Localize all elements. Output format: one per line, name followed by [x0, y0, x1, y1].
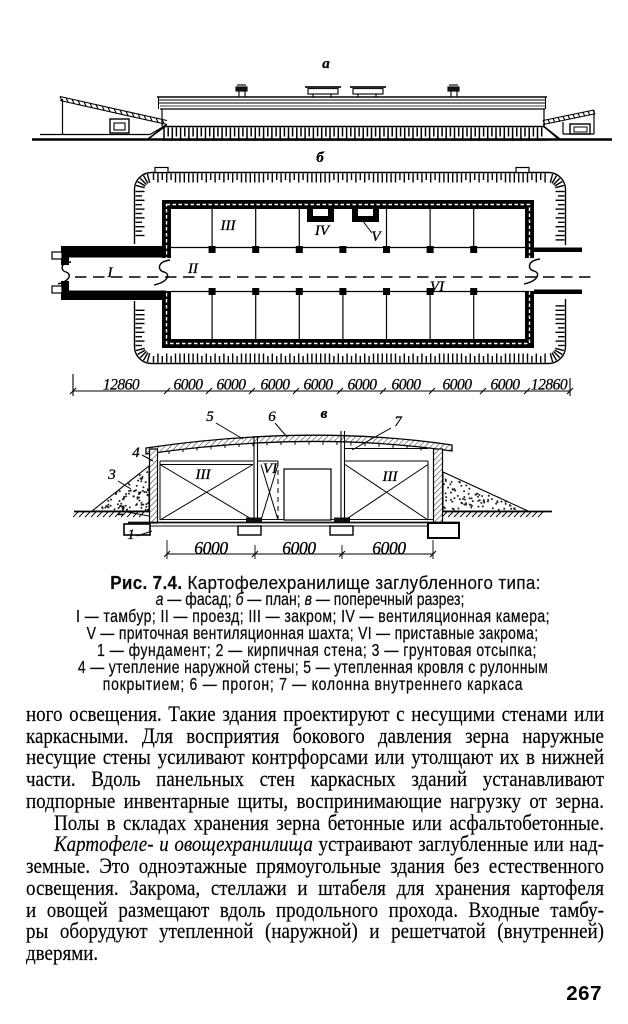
svg-text:3: 3: [107, 467, 116, 483]
svg-text:II: II: [187, 261, 199, 277]
svg-text:12860: 12860: [103, 377, 140, 394]
svg-text:III: III: [382, 469, 399, 485]
svg-text:6000: 6000: [392, 377, 422, 394]
svg-text:III: III: [220, 218, 237, 234]
svg-text:6000: 6000: [217, 377, 247, 394]
svg-text:6000: 6000: [443, 377, 473, 394]
svg-text:1: 1: [127, 527, 135, 543]
svg-text:5: 5: [206, 409, 214, 425]
svg-text:6000: 6000: [372, 538, 406, 558]
svg-text:6: 6: [268, 409, 276, 425]
svg-text:4: 4: [132, 445, 140, 461]
svg-text:IV: IV: [314, 223, 331, 239]
svg-text:2: 2: [117, 503, 125, 519]
svg-text:VI: VI: [263, 461, 278, 477]
svg-text:6000: 6000: [194, 538, 228, 558]
svg-text:6000: 6000: [174, 377, 204, 394]
svg-text:б: б: [316, 150, 324, 166]
svg-text:6000: 6000: [491, 377, 521, 394]
svg-text:6000: 6000: [348, 377, 378, 394]
svg-text:в: в: [321, 406, 328, 422]
svg-text:а: а: [322, 56, 330, 72]
svg-text:I: I: [107, 265, 114, 281]
svg-text:12860: 12860: [531, 377, 568, 394]
svg-text:6000: 6000: [304, 377, 334, 394]
svg-text:III: III: [195, 467, 212, 483]
svg-text:6000: 6000: [282, 538, 316, 558]
svg-text:6000: 6000: [261, 377, 291, 394]
svg-text:7: 7: [394, 414, 403, 430]
svg-text:VI: VI: [430, 279, 445, 295]
